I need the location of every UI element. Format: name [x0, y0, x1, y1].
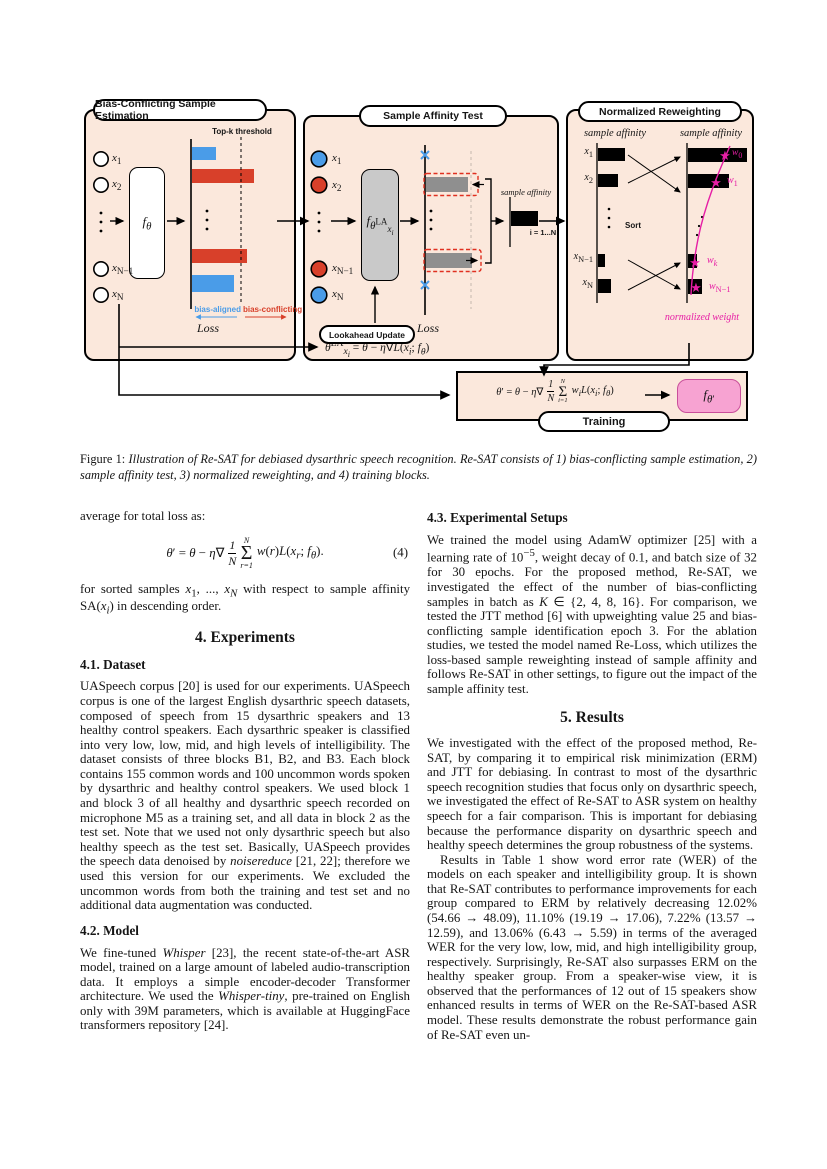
panel2-title-text: Sample Affinity Test	[383, 110, 483, 122]
frac-denominator: N	[547, 394, 554, 404]
weight-w0-label: w0	[732, 148, 742, 160]
panel2-x1-label: x1	[332, 152, 341, 166]
connector-panel3-to-training	[544, 343, 689, 375]
panel3-right-bars	[688, 148, 747, 294]
sort-label: Sort	[625, 221, 641, 230]
minichart-index-label: i = 1...N	[515, 228, 571, 237]
paper-page: ★ ★ ★ ★ Bias-Conflicting Sample Estimati…	[0, 0, 827, 1169]
frac-numerator: 1	[229, 539, 235, 551]
lookahead-update-pill: Lookahead Update	[319, 325, 415, 344]
panel1-xn-label: xN	[112, 288, 124, 302]
training-pill: Training	[538, 411, 670, 432]
model-paragraph: We fine-tuned Whisper [23], the recent s…	[80, 946, 410, 1033]
star-icon: ★	[719, 148, 731, 163]
frac-denominator: N	[228, 555, 236, 567]
panel2-input-circles	[311, 151, 327, 303]
dataset-paragraph: UASpeech corpus [20] is used for our exp…	[80, 679, 410, 912]
star-icon: ★	[690, 280, 702, 295]
bias-conflicting-label: bias-conflicting	[243, 305, 301, 314]
right-column: 4.3. Experimental Setups We trained the …	[427, 509, 757, 1042]
panel3-xn-label: xN	[569, 277, 593, 290]
training-formula-rhs: wiL(xi; fθ)	[572, 385, 614, 398]
panel2-xn-label: xN	[332, 288, 344, 302]
eq4-fraction: 1 N	[228, 539, 236, 567]
lookahead-update-text: Lookahead Update	[329, 330, 405, 340]
panel1-x1-label: x1	[112, 152, 121, 166]
panel2-xn1-label: xN−1	[332, 262, 353, 276]
topk-threshold-label: Top-k threshold	[197, 127, 287, 136]
panel1-title-text: Bias-Conflicting Sample Estimation	[95, 98, 265, 122]
eq4-rhs: w(r)L(xr; fθ).	[257, 544, 324, 562]
panel1-loss-label: Loss	[197, 321, 219, 336]
panel3-left-header: sample affinity	[573, 128, 657, 139]
body-columns: average for total loss as: θ′ = θ − η∇ 1…	[80, 509, 757, 1042]
training-formula-fraction: 1 N	[547, 380, 554, 404]
panel3-left-bars	[598, 148, 625, 293]
panel1-x2-label: x2	[112, 178, 121, 192]
sigma-symbol: Σ	[241, 545, 253, 562]
sum-lower-limit: r=1	[240, 562, 253, 570]
setups-paragraph: We trained the model using AdamW optimiz…	[427, 533, 757, 697]
section-41-heading: 4.1. Dataset	[80, 658, 410, 673]
training-formula-lhs: θ′ = θ − η∇	[496, 386, 543, 398]
frac-numerator: 1	[548, 380, 553, 390]
panel3-xn1-label: xN−1	[563, 251, 593, 264]
panel2-loss-label: Loss	[417, 321, 439, 336]
star-icon: ★	[689, 255, 701, 270]
after-equation-paragraph: for sorted samples x1, ..., xN with resp…	[80, 582, 410, 617]
training-pill-text: Training	[583, 416, 626, 428]
panel1-title: Bias-Conflicting Sample Estimation	[93, 99, 267, 121]
weight-wn1-label: wN−1	[709, 281, 731, 294]
equation-4: θ′ = θ − η∇ 1 N N Σ r=1 w(r)L(xr; fθ). (…	[80, 537, 410, 570]
caption-prefix: Figure 1:	[80, 452, 125, 466]
eq4-lhs: θ′ = θ − η∇	[166, 546, 224, 561]
weight-stars: ★ ★ ★ ★	[689, 148, 731, 295]
weight-curve	[691, 146, 730, 295]
bias-aligned-label: bias-aligned	[187, 305, 241, 314]
diagram-graphics: ★ ★ ★ ★	[79, 99, 757, 446]
normalized-weight-label: normalized weight	[651, 312, 753, 323]
results-paragraph-1: We investigated with the effect of the p…	[427, 736, 757, 853]
section-4-heading: 4. Experiments	[80, 629, 410, 647]
panel3-title: Normalized Reweighting	[578, 101, 742, 122]
figure-caption: Figure 1: Illustration of Re-SAT for deb…	[80, 452, 757, 483]
eq4-number: (4)	[393, 546, 408, 561]
left-column: average for total loss as: θ′ = θ − η∇ 1…	[80, 509, 410, 1042]
weight-wk-label: wk	[707, 255, 717, 268]
training-formula: θ′ = θ − η∇ 1 N N Σ i=1 wiL(xi; fθ)	[465, 379, 645, 405]
panel1-loss-bars	[192, 147, 254, 292]
figure-1-diagram: ★ ★ ★ ★ Bias-Conflicting Sample Estimati…	[79, 99, 757, 446]
sample-affinity-minichart-label: sample affinity	[489, 187, 563, 197]
panel1-xn1-label: xN−1	[112, 262, 133, 276]
panel3-x1-label: x1	[569, 146, 593, 159]
star-icon: ★	[710, 175, 722, 190]
panel3-title-text: Normalized Reweighting	[599, 106, 721, 118]
panel3-right-header: sample affinity	[669, 128, 753, 139]
training-formula-sum: N Σ i=1	[558, 379, 567, 405]
caption-text: Illustration of Re-SAT for debiased dysa…	[80, 452, 757, 482]
weight-w1-label: w1	[727, 175, 738, 188]
intro-line: average for total loss as:	[80, 509, 410, 524]
panel2-title: Sample Affinity Test	[359, 105, 507, 127]
panel1-input-circles	[94, 152, 108, 302]
panel3-x2-label: x2	[569, 172, 593, 185]
minichart-bar	[511, 211, 538, 226]
panel2-affinity-bars	[424, 174, 484, 272]
sum-lower-limit: i=1	[558, 398, 567, 405]
section-43-heading: 4.3. Experimental Setups	[427, 511, 757, 526]
results-paragraph-2: Results in Table 1 show word error rate …	[427, 853, 757, 1043]
eq4-sum: N Σ r=1	[240, 537, 253, 570]
panel2-x2-label-fix: x2	[332, 179, 341, 193]
section-42-heading: 4.2. Model	[80, 924, 410, 939]
section-5-heading: 5. Results	[427, 709, 757, 727]
